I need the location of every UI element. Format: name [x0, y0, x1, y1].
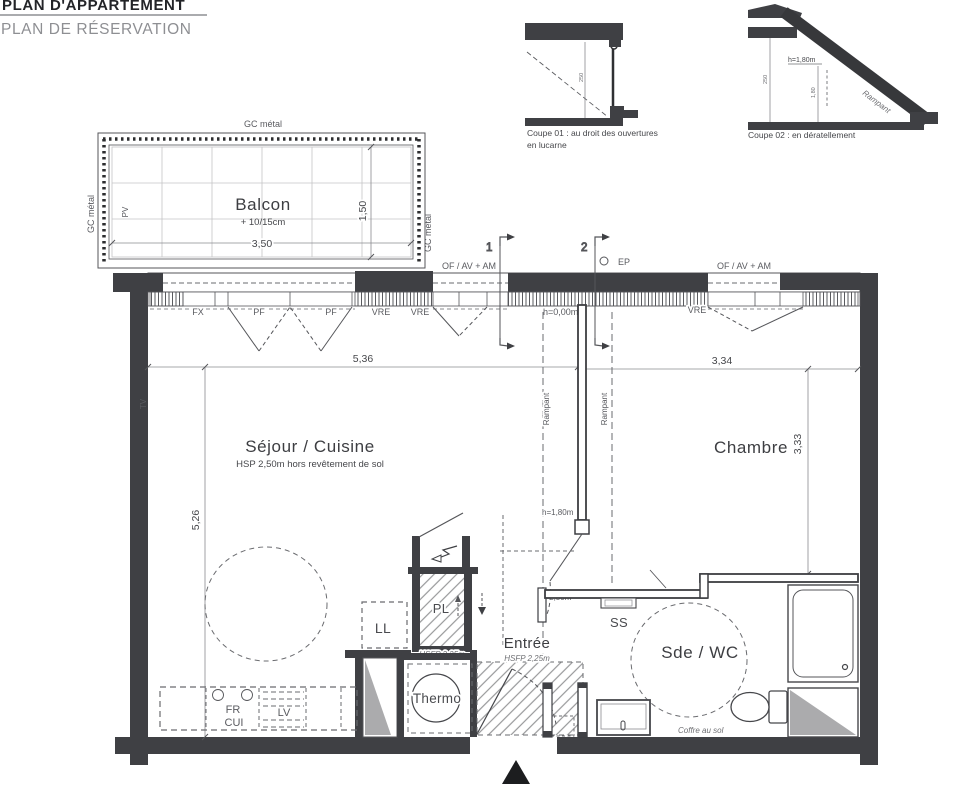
window-row: [148, 292, 860, 306]
appliance-ll: LL: [362, 602, 407, 648]
balcony-depth-dim: 1,50: [357, 201, 369, 222]
lv-label: LV: [278, 707, 291, 719]
ss-label: SS: [610, 615, 628, 630]
glazing-vre-1: [355, 292, 433, 306]
sde-north-wall: [545, 590, 707, 598]
lightning-arrowhead: [432, 555, 441, 562]
balcony-rail-top-label: GC métal: [244, 119, 282, 129]
floor-plan-canvas: PLAN D'APPARTEMENT PLAN DE RÉSERVATION 2…: [0, 0, 963, 800]
page-subtitle: PLAN DE RÉSERVATION: [1, 21, 192, 38]
entree-sub: HSFP 2,25m: [504, 654, 550, 663]
room-sde-wc: SS Sde / WC Coffre au sol: [545, 570, 858, 737]
glazing-vre-main: [508, 292, 708, 306]
ll-label: LL: [375, 620, 391, 636]
label-pf1: PF: [253, 307, 265, 317]
label-h180: h=1,80m: [542, 508, 574, 517]
coupe02-beam: [748, 27, 797, 38]
partition-sejour-chambre: [578, 305, 586, 520]
room-sejour: TV Séjour / Cuisine HSP 2,50m hors revêt…: [139, 398, 384, 661]
technical-shaft-right: [788, 688, 858, 737]
room-chambre: Chambre: [714, 438, 788, 457]
coupe01-floor: [525, 118, 623, 126]
wall-left: [130, 273, 148, 765]
sde-name: Sde / WC: [661, 643, 739, 662]
balcony-rail-left-label: GC métal: [86, 195, 96, 233]
niche-flap: [419, 513, 463, 537]
balcony-level: + 10/15cm: [241, 217, 286, 228]
ep-symbol: [600, 257, 608, 265]
dim-chambre-width: 3,34: [712, 355, 733, 367]
chambre-south-wall: [700, 574, 858, 582]
sink: [597, 700, 650, 735]
pl-name: PL: [433, 601, 450, 616]
chambre-door-leaf: [550, 534, 582, 581]
label-vre1: VRE: [372, 307, 391, 317]
chambre-name: Chambre: [714, 438, 788, 457]
rampant-label-left: Rampant: [542, 392, 551, 425]
coupe01-caption-line1: Coupe 01 : au droit des ouvertures: [527, 128, 658, 138]
coupe02-dim-total: 250: [763, 75, 769, 84]
sejour-turning-circle: [205, 547, 327, 661]
rampant-label-right: Rampant: [600, 392, 609, 425]
coupe02-floor: [748, 122, 924, 130]
wall-bottom-left: [115, 737, 470, 754]
balcony-name: Balcon: [235, 195, 291, 214]
glazing-right: [803, 292, 858, 306]
entree-name: Entrée: [504, 635, 551, 652]
electrical-niche: [408, 513, 478, 574]
sejour-name: Séjour / Cuisine: [245, 437, 375, 456]
balcony-pv-label: PV: [121, 206, 130, 217]
label-ep: EP: [618, 257, 630, 267]
door-leaf-open: [543, 683, 552, 737]
label-fx: FX: [192, 307, 204, 317]
coupe01-caption-line2: en lucarne: [527, 140, 567, 150]
coupe02-rafter: [784, 12, 928, 120]
label-vre2: VRE: [411, 307, 430, 317]
down-arrow-icon: [478, 607, 486, 615]
coupe01-top-beam: [525, 23, 623, 40]
dim-sejour-depth: 5,26: [190, 510, 202, 531]
cui-label: CUI: [225, 717, 244, 729]
header: PLAN D'APPARTEMENT PLAN DE RÉSERVATION: [0, 0, 207, 38]
kitchen-counter: FR CUI LV: [160, 687, 357, 730]
toilet-bowl-icon: [731, 693, 769, 722]
thermo-name: Thermo: [413, 691, 461, 706]
entree-sde-jamb: [578, 683, 587, 737]
floor-plan-page: PLAN D'APPARTEMENT PLAN DE RÉSERVATION 2…: [0, 0, 963, 800]
section-marker-2: 2: [581, 242, 587, 254]
closet-pl: PL HSFP 2,25m: [412, 574, 472, 659]
glazing-fx: [150, 292, 183, 306]
coupe02-caption: Coupe 02 : en dératellement: [748, 130, 856, 140]
label-pf2: PF: [325, 307, 337, 317]
entrance-marker-triangle: [502, 760, 530, 784]
label-of-av-am-left: OF / AV + AM: [442, 261, 496, 271]
dim-chambre-depth: 3,33: [792, 434, 804, 455]
partition-end-post: [575, 520, 589, 534]
label-h-zero: h=0,00m: [543, 307, 578, 317]
toilet: [731, 691, 787, 723]
page-title: PLAN D'APPARTEMENT: [2, 0, 185, 14]
window-swings: [228, 307, 803, 351]
wall-pier-1: [355, 271, 433, 292]
coupe02-dim-inner: 1,80: [811, 87, 817, 98]
balcony-width-dim: 3,50: [252, 238, 273, 250]
burner-icon-2: [242, 690, 253, 701]
label-vre3: VRE: [688, 305, 707, 315]
wall-lucarne-band: [508, 273, 708, 292]
shelf-ss: SS: [601, 598, 636, 630]
balcony-rail-right-label: GC métal: [423, 214, 433, 252]
fr-label: FR: [226, 704, 241, 716]
coupe-01-section-drawing: 250 Coupe 01 : au droit des ouvertures e…: [525, 23, 658, 150]
entree-hatched-floor: [477, 662, 583, 735]
section-marker-1: 1: [486, 242, 492, 254]
wall-right: [860, 273, 878, 765]
thermo-zone: Thermo: [345, 650, 477, 737]
coffre-label: Coffre au sol: [678, 726, 724, 735]
balcony: 3,50 1,50 GC métal GC métal GC métal PV …: [86, 119, 433, 268]
burner-icon-1: [213, 690, 224, 701]
tv-label: TV: [139, 398, 148, 409]
sejour-sub: HSP 2,50m hors revêtement de sol: [236, 459, 384, 470]
room-entree: Entrée HSFP 2,25m: [477, 588, 587, 784]
coupe-02-section-drawing: 250 h=1,80m 1,80 Rampant Coupe 02 : en d…: [748, 4, 938, 140]
dim-sejour-width: 5,36: [353, 353, 374, 365]
shower-tray: [788, 585, 858, 682]
coupe02-height-label: h=1,80m: [788, 57, 816, 64]
label-of-av-am-right: OF / AV + AM: [717, 261, 771, 271]
coupe01-dim-label: 250: [579, 73, 585, 82]
wall-bottom-right: [557, 737, 878, 754]
